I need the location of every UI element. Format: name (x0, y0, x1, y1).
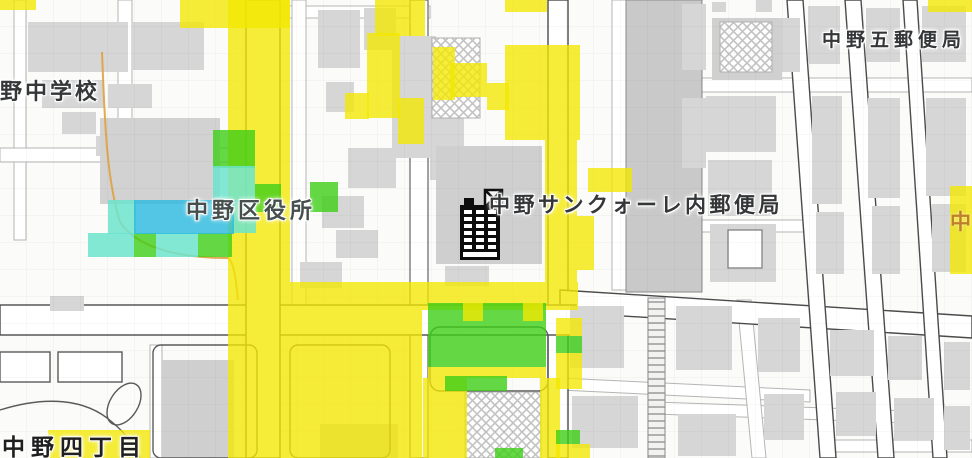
label-post-office-main: 中野サンクォーレ内郵便局 (489, 189, 783, 219)
label-school: 野中学校 (0, 74, 100, 106)
basemap (0, 0, 972, 458)
map-canvas[interactable]: 野中学校 中野区役所 中野サンクォーレ内郵便局 中野五郵便局 中野四丁目 中 (0, 0, 972, 458)
label-district-partial: 中 (950, 206, 971, 236)
label-city-office: 中野区役所 (186, 193, 316, 225)
label-post-office-five: 中野五郵便局 (822, 25, 966, 52)
label-district: 中野四丁目 (2, 428, 147, 458)
